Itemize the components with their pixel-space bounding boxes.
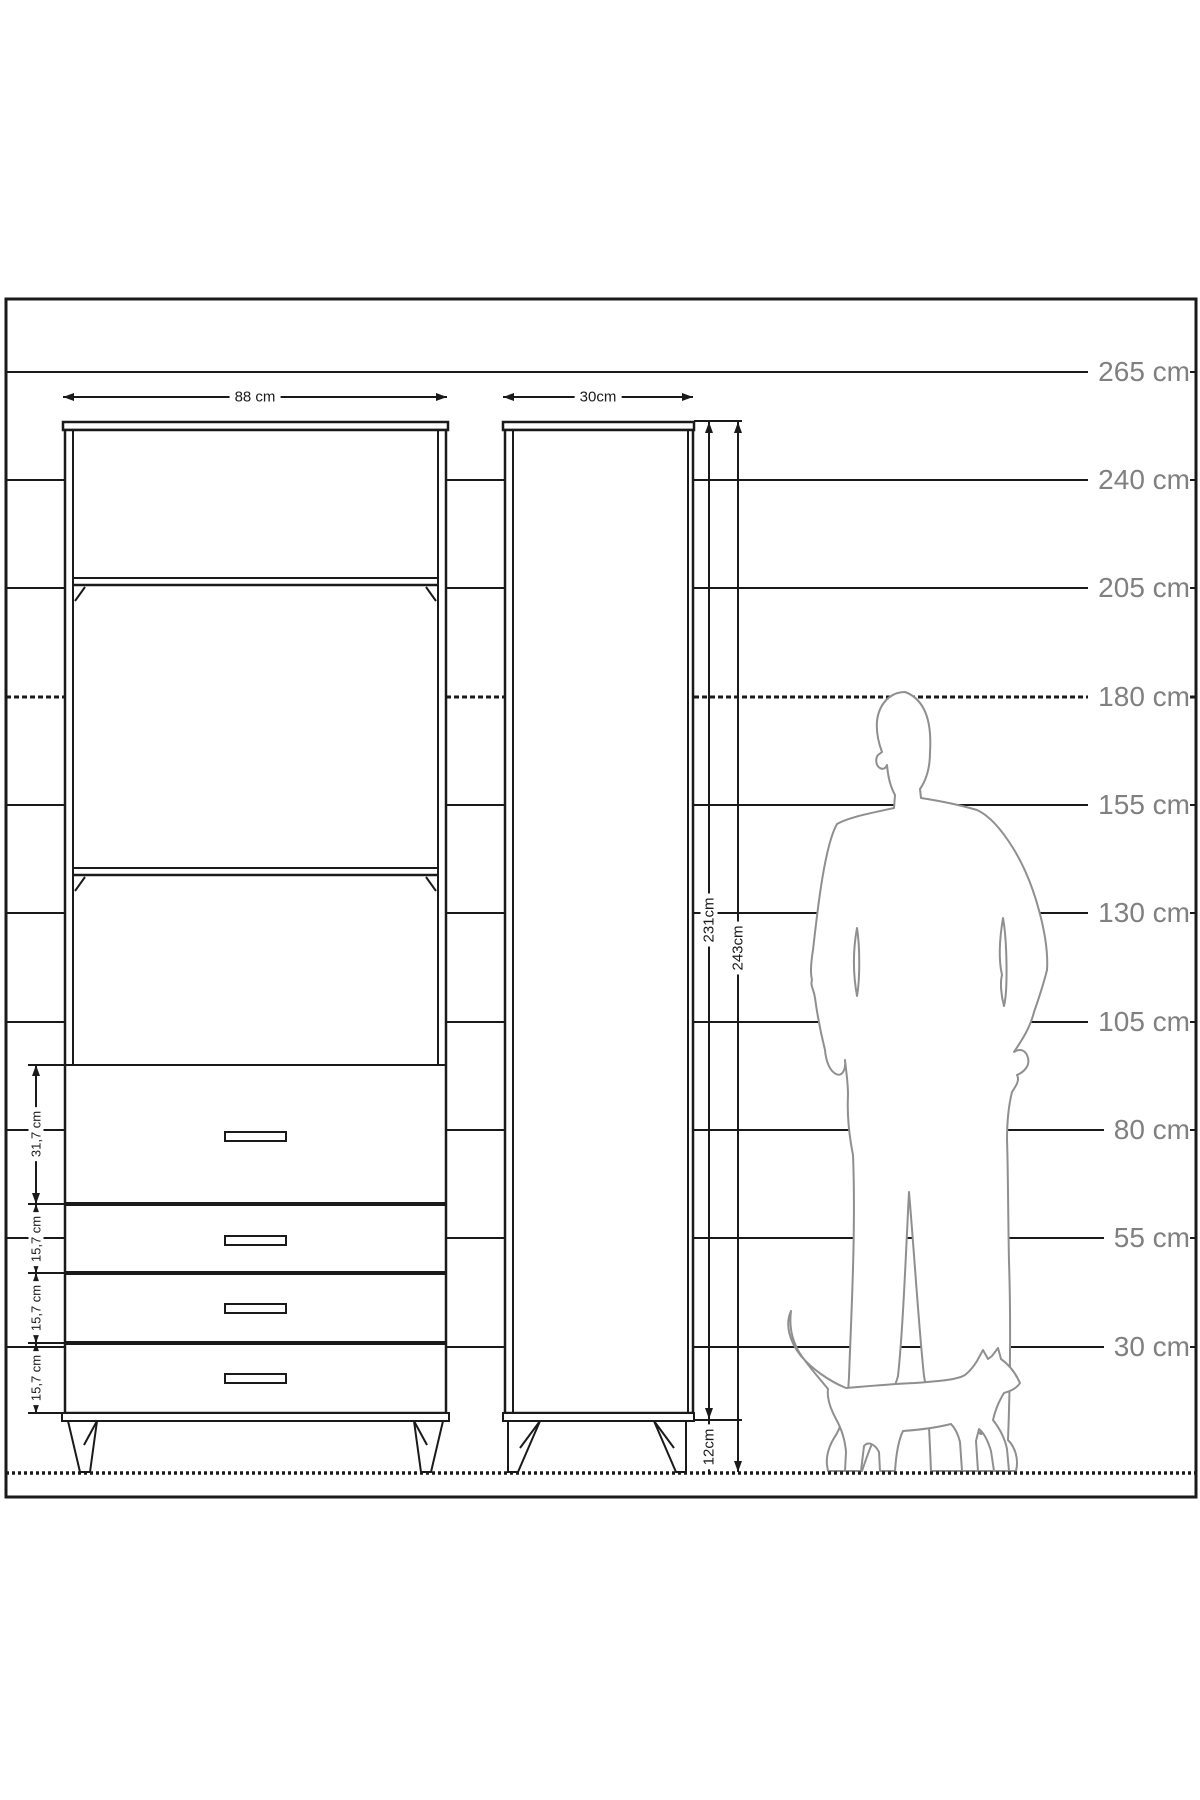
leg-height-label: 12cm xyxy=(701,1425,718,1470)
side-plinth xyxy=(503,1413,694,1421)
drawer-dim-label-4: 15,7 cm xyxy=(29,1351,44,1405)
cat-belly-dot xyxy=(979,1431,983,1435)
scale-label-105: 105 cm xyxy=(1088,1005,1190,1039)
scale-label-205: 205 cm xyxy=(1088,571,1190,605)
scale-label-265: 265 cm xyxy=(1088,355,1190,389)
side-depth-label: 30cm xyxy=(575,389,622,406)
diagram-drawing xyxy=(0,0,1200,1800)
drawer-dim-label-3: 15,7 cm xyxy=(29,1281,44,1335)
drawer-handle-1 xyxy=(225,1132,286,1141)
front-view-drawing xyxy=(62,422,449,1472)
drawer-dim-label-1: 31,7 cm xyxy=(29,1107,44,1161)
scale-label-180: 180 cm xyxy=(1088,680,1190,714)
drawer-handle-4 xyxy=(225,1374,286,1383)
scale-label-240: 240 cm xyxy=(1088,463,1190,497)
dimension-diagram: 265 cm 240 cm 205 cm 180 cm 155 cm 130 c… xyxy=(0,0,1200,1800)
drawer-dim-label-2: 15,7 cm xyxy=(29,1212,44,1266)
side-view-drawing xyxy=(503,422,694,1472)
side-legs xyxy=(508,1421,686,1472)
front-width-label: 88 cm xyxy=(230,389,281,406)
scale-label-130: 130 cm xyxy=(1088,896,1190,930)
front-plinth xyxy=(62,1413,449,1421)
scale-label-55: 55 cm xyxy=(1104,1221,1190,1255)
scale-label-155: 155 cm xyxy=(1088,788,1190,822)
total-height-label: 243cm xyxy=(730,921,747,974)
body-height-label: 231cm xyxy=(701,893,718,946)
drawer-handle-2 xyxy=(225,1236,286,1245)
scale-label-30: 30 cm xyxy=(1104,1330,1190,1364)
side-body xyxy=(505,430,693,1413)
man-silhouette xyxy=(811,692,1047,1471)
drawer-handle-3 xyxy=(225,1304,286,1313)
scale-label-80: 80 cm xyxy=(1104,1113,1190,1147)
front-legs xyxy=(68,1421,443,1472)
